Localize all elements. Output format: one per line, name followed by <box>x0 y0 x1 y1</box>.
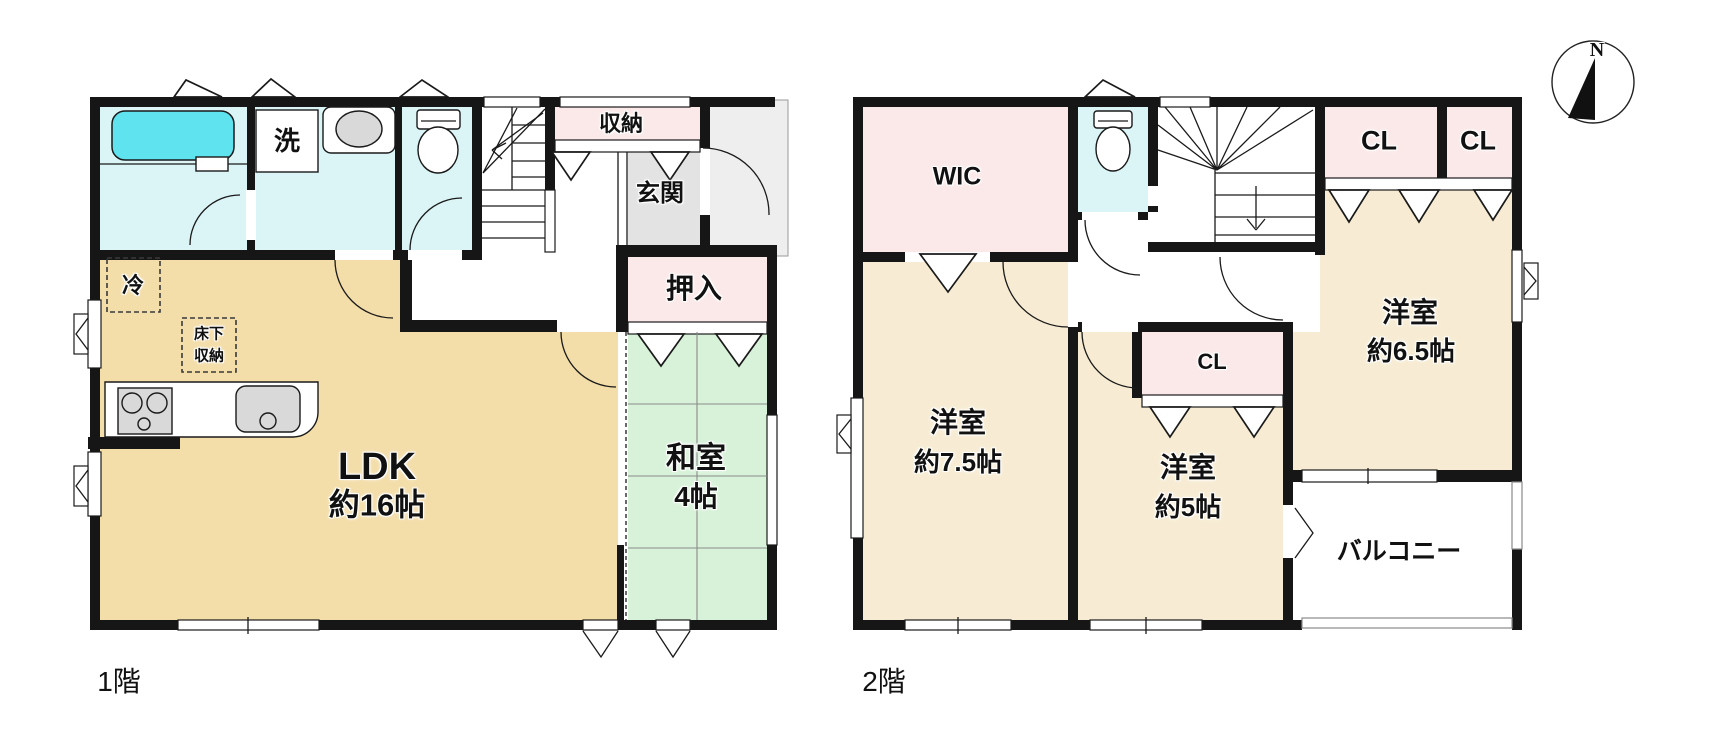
toilet-door-opening-2f <box>1082 212 1138 220</box>
stairs-top-window-2f <box>1160 97 1210 107</box>
room-label-ldk: LDK <box>338 448 416 486</box>
room-label-laundry: 洗 <box>274 128 300 154</box>
label-underfloor-1: 床下 <box>194 327 224 342</box>
washbasin <box>323 107 395 153</box>
ldk-left-window-1 <box>88 300 101 368</box>
room-label-cl1: CL <box>1361 128 1397 155</box>
hallway-2f <box>1078 212 1320 332</box>
storage-closet-front <box>555 140 700 152</box>
floorplan-drawing <box>0 0 1719 731</box>
ldk-bottom-door <box>583 620 618 630</box>
stairs-top-window-1f <box>484 97 540 107</box>
vent-marker-washroom <box>252 79 295 97</box>
room-label-cl2: CL <box>1460 128 1496 155</box>
bedroom-65-bottom-window <box>1302 470 1437 482</box>
bathtub-step <box>196 157 228 171</box>
label-underfloor-2: 収納 <box>194 349 224 364</box>
tatami-bottom-door <box>656 620 690 630</box>
room-label-oshiire: 押入 <box>666 275 722 303</box>
bedroom-5-door-opening <box>1082 322 1138 332</box>
room-label-storage: 収納 <box>599 113 643 135</box>
room-label-cl3: CL <box>1197 351 1226 373</box>
window-shutter-marker-left-1 <box>74 314 88 354</box>
tatami-right-window <box>767 415 777 545</box>
window-shutter-marker-left-2 <box>74 466 88 506</box>
stair-railing <box>545 190 555 252</box>
toilet-door-opening-1f <box>408 250 462 260</box>
floor2-title: 2階 <box>862 668 906 696</box>
floorplan-canvas: 洗 収納 玄関 押入 和室 4帖 LDK 約16帖 冷 床下 収納 1階 WIC… <box>0 0 1719 731</box>
room-size-washitsu: 4帖 <box>674 483 718 511</box>
room-size-bedroom65: 約6.5帖 <box>1367 338 1455 364</box>
storage-top-window <box>560 97 690 107</box>
staircase-1f <box>482 107 545 255</box>
vent-marker-toilet-1f <box>400 80 448 97</box>
washroom-door-opening <box>335 250 393 260</box>
vent-marker-bathroom <box>174 80 222 97</box>
window-shutter-marker-right-2f <box>1524 263 1538 299</box>
window-shutter-marker-left-2f <box>837 415 851 453</box>
label-fridge-space: 冷 <box>122 275 144 297</box>
kitchen-counter <box>105 382 318 437</box>
room-label-bedroom5: 洋室 <box>1160 454 1216 482</box>
shutter-marks-bottom <box>583 631 690 657</box>
room-label-wic: WIC <box>933 165 982 190</box>
cl3-closet-front <box>1142 395 1283 407</box>
entrance-door-opening <box>700 148 710 215</box>
bathroom-door-jamb <box>246 190 256 240</box>
compass-north-label: N <box>1590 40 1604 60</box>
room-label-bedroom65: 洋室 <box>1382 299 1438 327</box>
bedroom-65-right-window <box>1512 250 1522 322</box>
toilet-icon-2f <box>1094 111 1132 171</box>
toilet-icon-1f <box>417 110 460 173</box>
hall-ldk-opening <box>557 320 616 332</box>
room-label-bedroom75: 洋室 <box>930 409 986 437</box>
room-label-washitsu: 和室 <box>666 444 726 474</box>
balcony-door-opening <box>1283 505 1293 558</box>
bathtub <box>112 111 234 160</box>
balcony-bottom-rail <box>1302 618 1512 628</box>
bedroom-75 <box>863 262 1068 620</box>
room-size-bedroom5: 約5帖 <box>1155 494 1221 520</box>
room-size-ldk: 約16帖 <box>329 490 425 521</box>
bedroom-75-door-opening <box>1068 262 1078 327</box>
vent-marker-toilet-2f <box>1085 80 1135 97</box>
hallway-1f-lower <box>412 250 618 320</box>
room-size-bedroom75: 約7.5帖 <box>914 449 1002 475</box>
floor1-title: 1階 <box>97 668 141 696</box>
entrance-porch <box>703 100 788 256</box>
ldk-left-window-2 <box>88 452 101 516</box>
stove-icon <box>118 388 172 434</box>
sink-icon <box>236 386 300 432</box>
bedroom-75-left-window <box>851 398 863 538</box>
toilet-door-jamb-2f <box>1148 186 1158 206</box>
room-label-entrance: 玄関 <box>636 182 684 206</box>
room-label-balcony: バルコニー <box>1337 540 1462 565</box>
cl-closet-front <box>1325 178 1512 190</box>
kitchen-wall-stub <box>88 437 180 449</box>
balcony-right-rail <box>1512 482 1522 549</box>
